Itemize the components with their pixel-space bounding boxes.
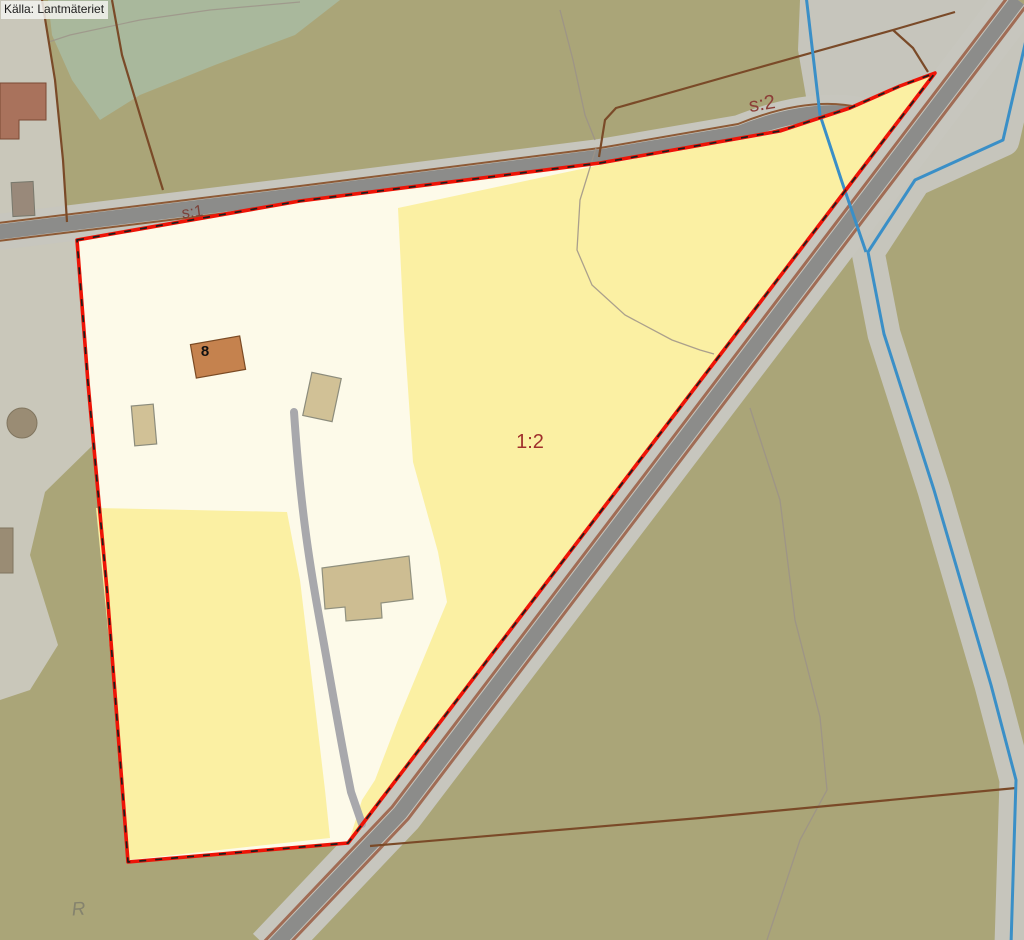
label-building-number: 8 bbox=[201, 343, 209, 360]
map-canvas[interactable]: s:1 s:2 1:2 8 R bbox=[0, 0, 1024, 940]
source-attribution: Källa: Lantmäteriet bbox=[1, 1, 108, 19]
building-left-small bbox=[11, 181, 35, 216]
label-common-land-s2: s:2 bbox=[747, 91, 777, 117]
field-lower-left bbox=[96, 508, 330, 860]
label-parcel-1-2: 1:2 bbox=[516, 431, 544, 453]
label-common-land-s1: s:1 bbox=[181, 203, 204, 223]
ancient-monument-symbol: R bbox=[71, 899, 86, 921]
building-shed-west bbox=[131, 404, 156, 446]
building-round-silo bbox=[7, 408, 37, 438]
map-viewport[interactable]: s:1 s:2 1:2 8 R Källa: Lantmäteriet bbox=[0, 0, 1024, 940]
building-left-edge bbox=[0, 528, 13, 573]
